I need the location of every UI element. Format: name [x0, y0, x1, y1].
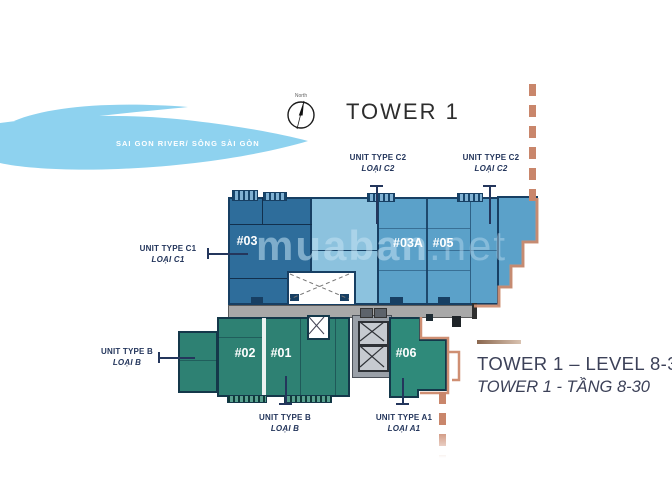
unit-number-06: #06 — [396, 346, 417, 360]
label-line2: LOẠI C2 — [350, 163, 407, 174]
leader-line — [370, 185, 383, 187]
wall-line — [378, 270, 470, 271]
door-marker — [251, 297, 263, 305]
floorplan-canvas: SAI GON RIVER/ SÔNG SÀI GÒN North TOWER … — [0, 0, 672, 504]
leader-line — [159, 357, 195, 359]
label-line1: UNIT TYPE C2 — [463, 152, 520, 163]
wall-line — [218, 337, 262, 338]
door-marker — [438, 297, 450, 305]
level-legend: TOWER 1 – LEVEL 8-30 TOWER 1 - TẦNG 8-30 — [477, 340, 672, 397]
label-unit-type-c1: UNIT TYPE C1 LOẠI C1 — [140, 243, 197, 265]
label-unit-type-a1: UNIT TYPE A1 LOẠI A1 — [376, 412, 432, 434]
leader-line — [279, 403, 292, 405]
door-marker — [390, 297, 403, 305]
label-line1: UNIT TYPE B — [259, 412, 311, 423]
corridor-end-cap — [472, 303, 477, 319]
label-unit-type-c2-left: UNIT TYPE C2 LOẠI C2 — [350, 152, 407, 174]
balcony-rect — [227, 395, 267, 403]
elevator-shaft — [358, 345, 389, 372]
leader-line — [402, 378, 404, 404]
label-line1: UNIT TYPE C1 — [140, 243, 197, 254]
stair-marker — [340, 294, 349, 301]
leader-line — [207, 248, 209, 259]
leader-line — [396, 403, 409, 405]
legend-rule — [477, 340, 521, 344]
elevator-shaft — [358, 321, 389, 346]
balcony-rect — [232, 190, 258, 201]
wall-line — [335, 318, 336, 396]
label-line2: LOẠI B — [101, 357, 153, 368]
boundary-dashed-line-right — [529, 84, 536, 207]
leader-line — [285, 376, 287, 404]
balcony-rect — [284, 395, 332, 403]
void-region — [307, 315, 330, 340]
label-unit-type-c2-right: UNIT TYPE C2 LOẠI C2 — [463, 152, 520, 174]
shaft-vent — [374, 308, 387, 318]
stair-marker — [290, 294, 299, 301]
label-unit-type-b-left: UNIT TYPE B LOẠI B — [101, 346, 153, 368]
wall-line — [300, 318, 301, 396]
leader-line — [158, 352, 160, 363]
label-line1: UNIT TYPE B — [101, 346, 153, 357]
label-line1: UNIT TYPE A1 — [376, 412, 432, 423]
shaft-vent — [360, 308, 373, 318]
saigon-river-graphic — [0, 96, 320, 178]
legend-title: TOWER 1 – LEVEL 8-30 — [477, 353, 672, 375]
balcony-rect — [367, 193, 395, 202]
balcony-rect — [392, 389, 418, 397]
label-line2: LOẠI B — [259, 423, 311, 434]
tower-title: TOWER 1 — [346, 99, 460, 125]
label-line1: UNIT TYPE C2 — [350, 152, 407, 163]
unit-number-03a: #03A — [393, 236, 423, 250]
wall-line — [262, 197, 263, 224]
balcony-edge-salmon — [448, 352, 459, 380]
compass-north-label: North — [295, 93, 307, 99]
balcony-rect — [263, 192, 287, 201]
river-label: SAI GON RIVER/ SÔNG SÀI GÒN — [116, 139, 260, 148]
unit-02-annex-region — [178, 331, 218, 393]
watermark: muaban.net — [256, 222, 507, 270]
balcony-rect — [457, 193, 483, 202]
legend-subtitle: TOWER 1 - TẦNG 8-30 — [477, 378, 672, 397]
unit-divider — [262, 318, 266, 396]
unit-number-05: #05 — [433, 236, 454, 250]
unit-number-02: #02 — [235, 346, 256, 360]
wall-line — [180, 360, 217, 361]
balcony-edge-salmon — [420, 317, 448, 393]
label-line2: LOẠI C1 — [140, 254, 197, 265]
boundary-dashed-line-bottom — [439, 392, 446, 458]
unit-number-03: #03 — [237, 234, 258, 248]
leader-line — [489, 186, 491, 224]
label-line2: LOẠI A1 — [376, 423, 432, 434]
north-compass-icon: North — [279, 88, 323, 134]
label-unit-type-b-bottom: UNIT TYPE B LOẠI B — [259, 412, 311, 434]
leader-line — [376, 186, 378, 224]
leader-line — [208, 253, 248, 255]
label-line2: LOẠI C2 — [463, 163, 520, 174]
unit-number-01: #01 — [271, 346, 292, 360]
leader-line — [483, 185, 496, 187]
